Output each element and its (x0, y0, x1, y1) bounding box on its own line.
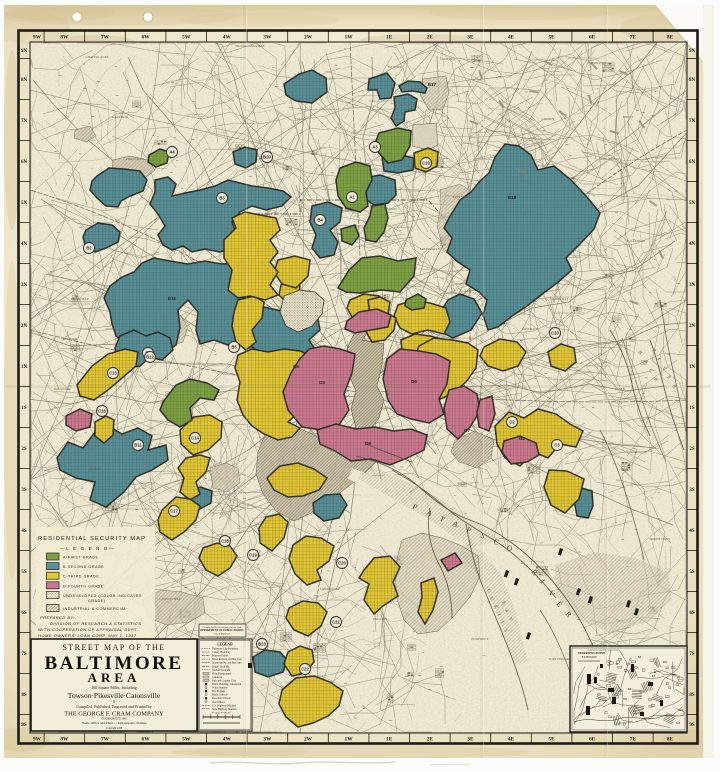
svg-text:Copyright 1936: Copyright 1936 (106, 727, 123, 730)
svg-text:City of Baltimore: City of Baltimore (214, 633, 231, 636)
svg-text:Plats, Playgrounds: Plats, Playgrounds (212, 672, 231, 675)
svg-text:1S: 1S (21, 406, 27, 411)
svg-text:9W: 9W (33, 35, 42, 41)
svg-text:4N: 4N (689, 242, 696, 247)
svg-text:8S: 8S (689, 693, 695, 698)
svg-text:4N: 4N (21, 242, 28, 247)
svg-text:7S: 7S (21, 652, 27, 657)
svg-text:Double Track RR: Double Track RR (212, 669, 231, 672)
svg-text:3S: 3S (21, 488, 27, 493)
svg-text:9N: 9N (689, 49, 696, 54)
svg-text:5W: 5W (182, 35, 191, 41)
svg-text:2E: 2E (427, 737, 434, 743)
svg-text:7E: 7E (630, 35, 637, 41)
svg-text:STREET MAP OF THE: STREET MAP OF THE (62, 643, 165, 652)
svg-text:2N: 2N (21, 324, 28, 329)
svg-text:Cemetery: Cemetery (212, 676, 223, 679)
svg-text:C-THIRD GRADE: C-THIRD GRADE (63, 575, 99, 579)
svg-text:U.S. Highway Markers: U.S. Highway Markers (212, 704, 236, 707)
svg-text:8W: 8W (60, 737, 69, 743)
svg-text:Park and Country Club: Park and Country Club (212, 679, 237, 682)
svg-text:7S: 7S (689, 652, 695, 657)
svg-text:6N: 6N (21, 160, 28, 165)
svg-text:Proposed Street: Proposed Street (212, 655, 229, 658)
svg-text:4E: 4E (508, 35, 515, 41)
svg-text:3S: 3S (689, 488, 695, 493)
svg-text:3E: 3E (467, 35, 474, 41)
svg-text:2W: 2W (304, 35, 313, 41)
svg-text:GRADE): GRADE) (88, 599, 106, 603)
svg-text:5E: 5E (548, 35, 555, 41)
svg-text:8E: 8E (667, 35, 674, 41)
svg-text:—L E G E N D—: —L E G E N D— (60, 546, 115, 551)
svg-text:3W: 3W (263, 35, 272, 41)
svg-text:Public Schools: Public Schools (212, 694, 228, 697)
svg-text:5N: 5N (21, 201, 28, 206)
svg-text:7W: 7W (101, 35, 110, 41)
svg-text:B-SECOND GRADE: B-SECOND GRADE (63, 565, 104, 569)
svg-text:Fire Engines: Fire Engines (212, 690, 225, 693)
svg-text:1W: 1W (345, 35, 354, 41)
svg-text:7W: 7W (101, 737, 110, 743)
svg-text:PREPARED BY:-: PREPARED BY:- (40, 615, 77, 620)
svg-text:6N: 6N (689, 160, 696, 165)
svg-text:1W: 1W (345, 737, 354, 743)
svg-text:7N: 7N (689, 119, 696, 124)
svg-text:6W: 6W (142, 737, 151, 743)
svg-text:6W: 6W (142, 35, 151, 41)
svg-text:6E: 6E (589, 737, 596, 743)
svg-text:7N: 7N (21, 119, 28, 124)
svg-text:LEGEND: LEGEND (217, 643, 233, 647)
svg-text:Parochial Schools: Parochial Schools (212, 697, 231, 700)
svg-text:1N: 1N (689, 365, 696, 370)
svg-text:1E: 1E (386, 737, 393, 743)
svg-text:5W: 5W (182, 737, 191, 743)
svg-text:4W: 4W (223, 737, 232, 743)
svg-text:DIVISION OF RESEARCH & STATIST: DIVISION OF RESEARCH & STATISTICS (50, 621, 141, 626)
svg-text:EXTENSION: EXTENSION (582, 656, 597, 659)
svg-text:Baltimore City Boundary: Baltimore City Boundary (212, 648, 239, 651)
svg-text:THE GEORGE F. CRAM COMPANY: THE GEORGE F. CRAM COMPANY (64, 711, 164, 718)
svg-text:2S: 2S (21, 447, 27, 452)
svg-text:6S: 6S (689, 611, 695, 616)
svg-text:5S: 5S (21, 570, 27, 575)
svg-text:6E: 6E (589, 35, 596, 41)
svg-text:A-FIRST GRADE: A-FIRST GRADE (63, 556, 99, 560)
svg-text:3N: 3N (21, 283, 28, 288)
svg-text:8S: 8S (21, 693, 27, 698)
svg-text:4W: 4W (223, 35, 232, 41)
svg-text:UNDEVELOPED (COLOR INDICATES: UNDEVELOPED (COLOR INDICATES (63, 594, 142, 598)
svg-text:Single Track RR: Single Track RR (212, 665, 230, 668)
svg-text:Interurban Ry. and Bus Line: Interurban Ry. and Bus Line (212, 662, 242, 665)
svg-text:2S: 2S (689, 447, 695, 452)
svg-text:Street Railway and Bus Line: Street Railway and Bus Line (212, 658, 243, 661)
svg-text:7E: 7E (630, 737, 637, 743)
svg-text:9S: 9S (689, 723, 695, 728)
svg-text:SPARROWS POINT: SPARROWS POINT (578, 651, 605, 655)
svg-text:8N: 8N (689, 78, 696, 83)
svg-text:HOME OWNERS' LOAN CORP. MAY 1,: HOME OWNERS' LOAN CORP. MAY 1, 1937 (38, 633, 137, 638)
svg-text:INDUSTRIAL & COMMERCIAL: INDUSTRIAL & COMMERCIAL (63, 607, 127, 611)
svg-text:RESIDENTIAL SECURITY MAP: RESIDENTIAL SECURITY MAP (38, 536, 146, 542)
svg-text:6S: 6S (21, 611, 27, 616)
svg-text:SCALE OF MILES: SCALE OF MILES (212, 712, 232, 715)
svg-text:8N: 8N (21, 78, 28, 83)
svg-text:9W: 9W (33, 737, 42, 743)
svg-text:AREA: AREA (88, 670, 141, 685)
svg-text:9S: 9S (21, 723, 27, 728)
svg-text:8W: 8W (60, 35, 69, 41)
svg-text:3E: 3E (467, 737, 474, 743)
svg-text:4E: 4E (508, 737, 515, 743)
svg-text:5N: 5N (689, 201, 696, 206)
svg-text:5S: 5S (689, 570, 695, 575)
svg-text:2E: 2E (427, 35, 434, 41)
svg-text:D-FOURTH GRADE: D-FOURTH GRADE (63, 584, 104, 588)
svg-text:4S: 4S (21, 529, 27, 534)
svg-text:9N: 9N (21, 49, 28, 54)
svg-text:3N: 3N (689, 283, 696, 288)
svg-text:1E: 1E (386, 35, 393, 41)
svg-text:8E: 8E (667, 737, 674, 743)
svg-text:4S: 4S (689, 529, 695, 534)
svg-text:5E: 5E (548, 737, 555, 743)
svg-text:County Boundary: County Boundary (212, 651, 231, 654)
svg-text:Police Stations: Police Stations (212, 687, 228, 690)
svg-text:2N: 2N (689, 324, 696, 329)
svg-text:1S: 1S (689, 406, 695, 411)
svg-text:2W: 2W (304, 737, 313, 743)
svg-text:3W: 3W (263, 737, 272, 743)
svg-text:Public Building, Substantial: Public Building, Substantial (212, 683, 241, 686)
svg-text:Post Offices: Post Offices (212, 701, 225, 704)
svg-text:WITH COOPERATION OF APPRAISAL: WITH COOPERATION OF APPRAISAL DEPT. (38, 627, 138, 632)
svg-text:1N: 1N (21, 365, 28, 370)
svg-text:State Highway Markers: State Highway Markers (212, 708, 237, 711)
